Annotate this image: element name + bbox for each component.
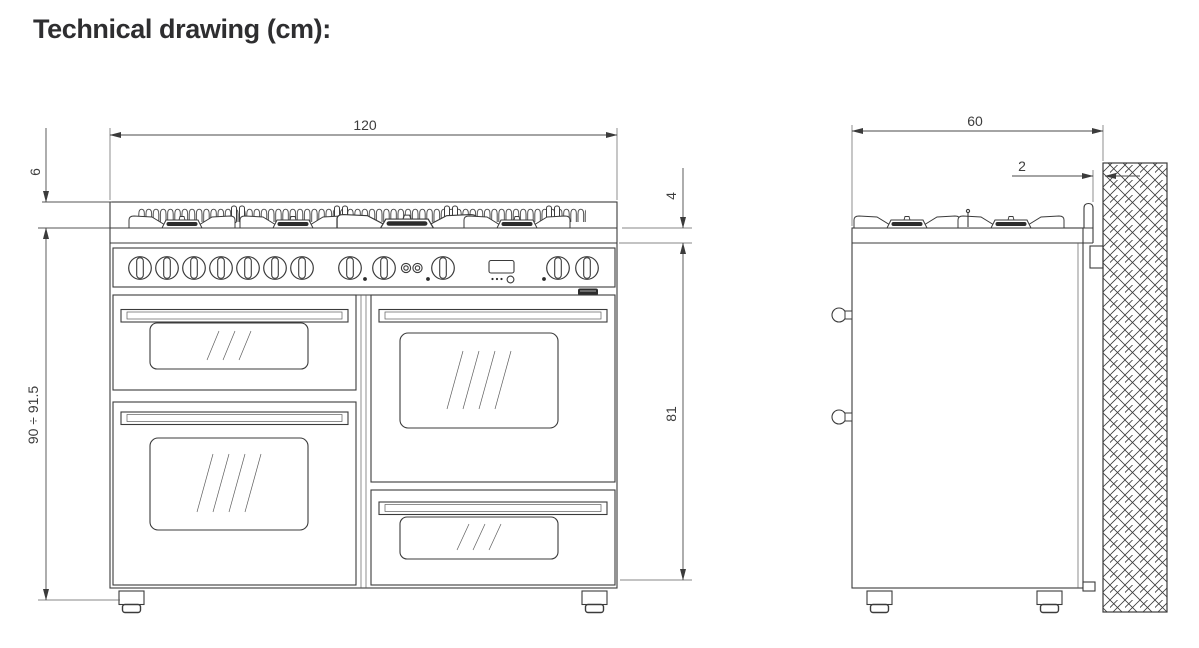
front-view xyxy=(38,202,617,613)
rear-wall-bracket xyxy=(1090,246,1103,268)
burner-icon xyxy=(958,216,1064,228)
control-knobs xyxy=(129,257,599,280)
dim-label-6: 6 xyxy=(27,168,43,176)
dim-label-90-91: 90 ÷ 91.5 xyxy=(25,386,41,444)
dim-grate-height: 6 xyxy=(27,128,112,228)
rear-upstand xyxy=(1084,204,1093,244)
technical-drawing-canvas: 120 6 90 ÷ 91.5 4 81 xyxy=(0,0,1199,648)
foot-icon xyxy=(1037,591,1062,613)
clock-display xyxy=(489,261,514,283)
dim-label-4: 4 xyxy=(663,192,679,200)
oven-door-bottom-left xyxy=(113,402,356,585)
burner-icon xyxy=(854,216,960,228)
foot-icon xyxy=(119,591,144,613)
dim-body-height: 81 xyxy=(620,243,692,580)
dim-side-depth: 60 xyxy=(852,113,1103,226)
dim-label-60: 60 xyxy=(967,113,983,129)
dim-label-2: 2 xyxy=(1018,158,1026,174)
pan-support-pin-tip xyxy=(966,209,969,212)
dim-label-120: 120 xyxy=(353,117,377,133)
burner-icon xyxy=(129,216,235,228)
technical-drawing-page: Technical drawing (cm): xyxy=(0,0,1199,648)
dim-overall-height: 90 ÷ 91.5 xyxy=(25,228,120,600)
dim-front-width: 120 xyxy=(110,117,617,200)
foot-icon xyxy=(867,591,892,613)
oven-door-main-right xyxy=(371,295,615,482)
side-handle-icon xyxy=(832,308,852,322)
wall-section xyxy=(1103,163,1167,612)
dim-label-81: 81 xyxy=(663,406,679,422)
side-body-outline xyxy=(852,228,1083,588)
oven-door-top-left xyxy=(113,295,356,390)
foot-icon xyxy=(582,591,607,613)
side-handle-icon xyxy=(832,410,852,424)
burner-icon xyxy=(240,216,346,228)
side-view xyxy=(832,163,1167,613)
storage-drawer-right xyxy=(371,490,615,585)
burner-large-icon xyxy=(337,215,477,228)
burner-icon xyxy=(464,216,570,228)
page-title: Technical drawing (cm): xyxy=(33,14,331,45)
dim-hob-thickness: 4 xyxy=(619,168,692,243)
ignition-buttons xyxy=(401,263,422,272)
rear-bottom-ledge xyxy=(1083,582,1095,591)
